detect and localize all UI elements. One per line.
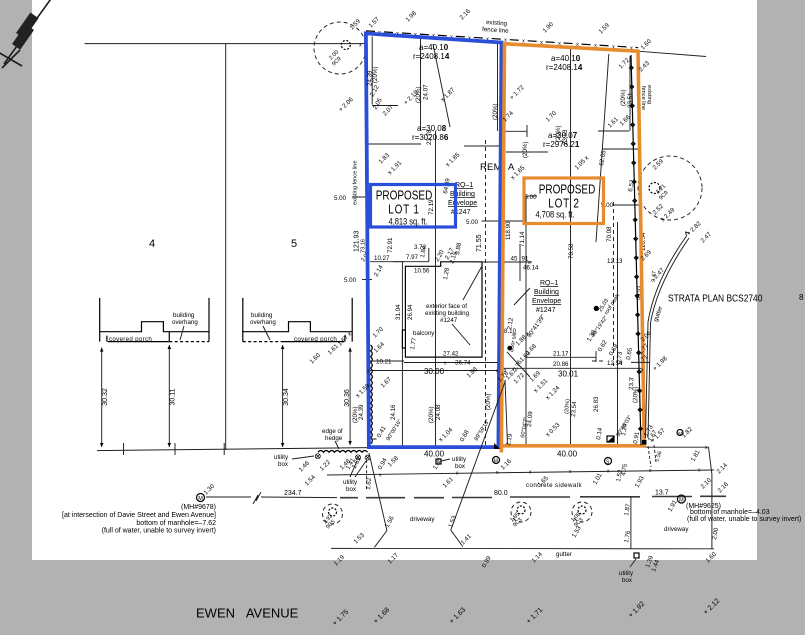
- svg-text:Envelope: Envelope: [532, 298, 561, 305]
- svg-text:box: box: [278, 461, 289, 468]
- svg-text:utility: utility: [274, 454, 289, 461]
- svg-text:overhang: overhang: [250, 319, 276, 326]
- svg-text:24.16: 24.16: [390, 404, 397, 420]
- svg-text:REM: REM: [480, 162, 502, 173]
- svg-text:10.27: 10.27: [374, 255, 390, 262]
- svg-text:27.42: 27.42: [443, 351, 459, 358]
- svg-text:21.17: 21.17: [553, 351, 569, 358]
- svg-text:LOT 1: LOT 1: [388, 204, 420, 217]
- svg-text:40.00: 40.00: [424, 450, 445, 459]
- svg-text:PROPOSED: PROPOSED: [376, 190, 433, 203]
- svg-text:31.04: 31.04: [395, 304, 402, 320]
- svg-text:RQ–1: RQ–1: [455, 182, 473, 189]
- svg-text:covered porch: covered porch: [294, 336, 337, 343]
- svg-text:EWEN AVENUE: EWEN AVENUE: [196, 606, 299, 621]
- svg-text:(full of water, unable to surv: (full of water, unable to survey invert): [102, 528, 216, 535]
- svg-text:24.08: 24.08: [435, 404, 442, 420]
- svg-text:45: 45: [511, 256, 518, 263]
- svg-text:building: building: [173, 312, 195, 319]
- svg-text:bottom of manhole=–4.03: bottom of manhole=–4.03: [690, 509, 770, 516]
- svg-text:(20%): (20%): [352, 406, 359, 423]
- svg-text:[at intersection of Davie Stre: [at intersection of Davie Street and Ewe…: [62, 512, 216, 519]
- svg-text:70.58: 70.58: [568, 243, 575, 259]
- svg-text:x: x: [528, 260, 531, 266]
- svg-text:4,813 sq. ft.: 4,813 sq. ft.: [388, 217, 427, 227]
- svg-text:Building: Building: [534, 289, 559, 296]
- svg-text:4,708 sq. ft.: 4,708 sq. ft.: [535, 210, 574, 220]
- svg-text:fence line: fence line: [640, 86, 646, 110]
- svg-text:30.34: 30.34: [283, 388, 290, 406]
- svg-text:bottom of manhole=–7.62: bottom of manhole=–7.62: [136, 520, 216, 527]
- svg-text:121.93: 121.93: [354, 230, 361, 252]
- svg-text:72.91: 72.91: [387, 237, 394, 253]
- svg-text:5.00: 5.00: [334, 195, 347, 202]
- svg-text:r=2408.14: r=2408.14: [546, 63, 583, 72]
- svg-text:a=40.10: a=40.10: [419, 43, 449, 52]
- svg-text:utility: utility: [619, 570, 634, 577]
- svg-text:5.00: 5.00: [344, 277, 357, 284]
- svg-text:x: x: [359, 43, 362, 49]
- svg-text:driveway: driveway: [664, 526, 689, 533]
- svg-text:71.14: 71.14: [519, 231, 526, 247]
- svg-text:71.55: 71.55: [476, 234, 483, 252]
- svg-text:PROPOSED: PROPOSED: [539, 184, 596, 197]
- svg-text:balcony: balcony: [413, 330, 435, 337]
- svg-text:46.14: 46.14: [523, 265, 539, 272]
- svg-text:30.01: 30.01: [558, 370, 579, 379]
- svg-text:utility: utility: [343, 479, 358, 486]
- svg-text:23.3': 23.3': [628, 377, 635, 390]
- svg-text:(20%): (20%): [415, 86, 422, 103]
- svg-text:gutter: gutter: [556, 551, 572, 558]
- svg-text:12.13: 12.13: [607, 258, 623, 265]
- svg-text:(20%): (20%): [428, 406, 435, 423]
- svg-text:M: M: [198, 496, 203, 502]
- svg-text:26.94: 26.94: [407, 304, 414, 320]
- svg-text:(20%): (20%): [492, 103, 499, 120]
- svg-text:23.51: 23.51: [627, 92, 634, 108]
- svg-text:23.54: 23.54: [570, 401, 578, 418]
- svg-text:10.56: 10.56: [414, 268, 430, 275]
- svg-text:existing building: existing building: [425, 310, 470, 317]
- svg-text:driveway: driveway: [410, 516, 435, 523]
- svg-text:box: box: [455, 463, 466, 470]
- svg-text:40.00: 40.00: [557, 450, 578, 459]
- svg-text:#1247: #1247: [440, 317, 458, 324]
- svg-text:5.00: 5.00: [525, 194, 538, 201]
- svg-text:M: M: [678, 431, 682, 437]
- svg-text:4: 4: [149, 238, 155, 250]
- svg-text:30.36: 30.36: [344, 389, 351, 407]
- svg-text:30.32: 30.32: [102, 388, 109, 406]
- svg-text:exterior face of: exterior face of: [426, 303, 467, 310]
- svg-text:23.78: 23.78: [426, 129, 433, 145]
- svg-text:covered porch: covered porch: [109, 336, 152, 343]
- svg-text:M: M: [679, 498, 684, 504]
- svg-text:M: M: [494, 458, 498, 464]
- svg-text:(20%): (20%): [522, 141, 529, 158]
- svg-text:(20%): (20%): [485, 393, 492, 410]
- svg-text:RQ–1: RQ–1: [540, 280, 558, 287]
- svg-text:23.53: 23.53: [562, 129, 569, 145]
- svg-text:(20%): (20%): [555, 125, 562, 142]
- svg-text:9.47: 9.47: [651, 271, 658, 282]
- svg-text:80.0: 80.0: [494, 490, 508, 497]
- svg-text:3.72: 3.72: [414, 244, 427, 251]
- svg-text:hedge: hedge: [325, 435, 343, 442]
- svg-text:r=2408.14: r=2408.14: [413, 52, 450, 61]
- svg-text:5: 5: [291, 238, 297, 250]
- svg-text:7.97: 7.97: [406, 254, 419, 261]
- svg-text:Building: Building: [450, 191, 475, 198]
- svg-text:(full of water, unable to surv: (full of water, unable to survey invert): [687, 516, 801, 523]
- svg-text:concrete sidewalk: concrete sidewalk: [526, 482, 582, 489]
- svg-text:(MH#9678): (MH#9678): [181, 504, 216, 511]
- svg-text:building: building: [251, 312, 273, 319]
- svg-text:24.39: 24.39: [358, 404, 365, 420]
- svg-text:box: box: [346, 486, 357, 493]
- svg-text:13.7: 13.7: [655, 490, 669, 497]
- svg-text:a=40.10: a=40.10: [551, 54, 581, 63]
- svg-text:26.83: 26.83: [593, 396, 600, 412]
- svg-text:118.90: 118.90: [505, 221, 512, 240]
- svg-text:5.00: 5.00: [466, 219, 479, 226]
- svg-text:20.86: 20.86: [553, 361, 569, 368]
- svg-text:overhang: overhang: [172, 319, 198, 326]
- svg-text:STRATA PLAN BCS2740: STRATA PLAN BCS2740: [668, 293, 762, 305]
- svg-text:box: box: [622, 577, 633, 584]
- svg-text:8: 8: [799, 293, 804, 302]
- svg-text:existing fence line: existing fence line: [353, 161, 359, 205]
- svg-text:LOT 2: LOT 2: [548, 198, 580, 211]
- svg-text:(20%): (20%): [372, 66, 379, 83]
- svg-text:24.09: 24.09: [526, 411, 534, 428]
- svg-text:(20%): (20%): [620, 89, 627, 106]
- svg-text:edge of: edge of: [322, 428, 343, 435]
- svg-text:#1247: #1247: [536, 307, 556, 314]
- svg-text:1.62: 1.62: [365, 477, 373, 490]
- svg-text:234.7: 234.7: [284, 490, 302, 497]
- svg-text:utility: utility: [452, 456, 467, 463]
- svg-text:10.21: 10.21: [376, 359, 392, 366]
- svg-text:30.00: 30.00: [424, 367, 445, 376]
- svg-text:24.07: 24.07: [423, 84, 430, 100]
- svg-text:30.11: 30.11: [170, 388, 177, 405]
- svg-text:70.08: 70.08: [606, 226, 613, 242]
- svg-text:Envelope: Envelope: [448, 200, 477, 207]
- svg-text:36.74: 36.74: [455, 360, 471, 367]
